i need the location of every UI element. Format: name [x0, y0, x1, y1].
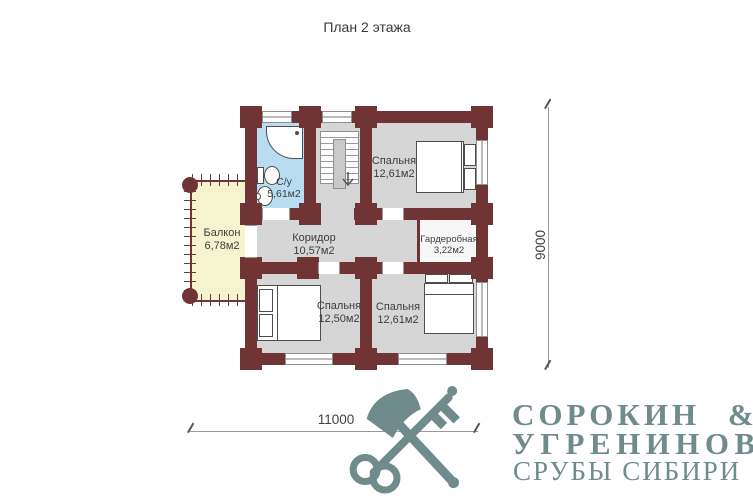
log-end — [355, 257, 377, 279]
dimension-line-vertical — [548, 107, 549, 368]
room-label-bathroom: С/у 5,61м2 — [262, 176, 306, 200]
log-end — [240, 203, 262, 225]
window-icon — [285, 353, 333, 365]
log-end — [355, 203, 377, 225]
pillow-icon — [259, 289, 273, 312]
room-label-balcony: Балкон 6,78м2 — [182, 227, 262, 252]
dimension-height-value: 9000 — [533, 220, 547, 270]
room-label-bedroom-top: Спальня 12,61м2 — [349, 155, 439, 180]
pillow-icon — [464, 168, 476, 190]
log-end — [471, 106, 493, 128]
page-title: План 2 этажа — [307, 19, 427, 35]
window-icon — [322, 111, 352, 123]
pillow-icon — [449, 274, 473, 283]
log-end — [240, 257, 262, 279]
window-icon — [476, 282, 488, 337]
room-label-corridor: Коридор 10,57м2 — [269, 232, 359, 257]
room-name: Коридор — [269, 232, 359, 245]
room-area: 3,22м2 — [418, 245, 480, 256]
window-icon — [398, 353, 447, 365]
balcony-post-icon — [182, 288, 198, 304]
log-end — [471, 257, 493, 279]
room-name: Спальня — [349, 155, 439, 168]
shower-drain-icon — [295, 131, 299, 135]
log-end — [299, 106, 321, 128]
floor-plan-page: План 2 этажа — [0, 0, 753, 502]
room-label-bedroom-bottom-right: Спальня 12,61м2 — [353, 301, 443, 326]
log-end — [355, 106, 377, 128]
log-end — [240, 348, 262, 370]
room-name: Гардеробная — [418, 234, 480, 245]
log-end — [471, 348, 493, 370]
log-end — [299, 203, 321, 225]
log-end — [240, 106, 262, 128]
pillow-icon — [464, 144, 476, 166]
door-opening — [382, 262, 404, 274]
brand-tagline: СРУБЫ СИБИРИ — [513, 456, 741, 487]
pillow-icon — [425, 274, 448, 283]
bed-blanket-line — [425, 294, 473, 295]
window-icon — [476, 140, 488, 185]
room-name: Спальня — [353, 301, 443, 314]
door-opening — [318, 262, 340, 274]
log-end — [297, 257, 319, 279]
balcony-post-icon — [182, 177, 198, 193]
room-area: 6,78м2 — [182, 240, 262, 253]
room-name: С/у — [262, 176, 306, 188]
room-area: 10,57м2 — [269, 245, 359, 258]
room-area: 5,61м2 — [262, 188, 306, 200]
room-label-wardrobe: Гардеробная 3,22м2 — [418, 234, 480, 256]
bed-blanket-line — [461, 142, 462, 192]
log-end — [355, 348, 377, 370]
room-name: Балкон — [182, 227, 262, 240]
room-area: 12,61м2 — [349, 168, 439, 181]
dimension-tick — [544, 360, 551, 370]
axe-and-key-icon — [344, 378, 486, 502]
room-area: 12,61м2 — [353, 314, 443, 327]
pillow-icon — [259, 314, 273, 337]
door-opening — [382, 208, 404, 220]
window-icon — [262, 111, 292, 123]
bed-blanket-line — [277, 286, 278, 340]
door-opening — [262, 208, 290, 220]
log-end — [471, 203, 493, 225]
